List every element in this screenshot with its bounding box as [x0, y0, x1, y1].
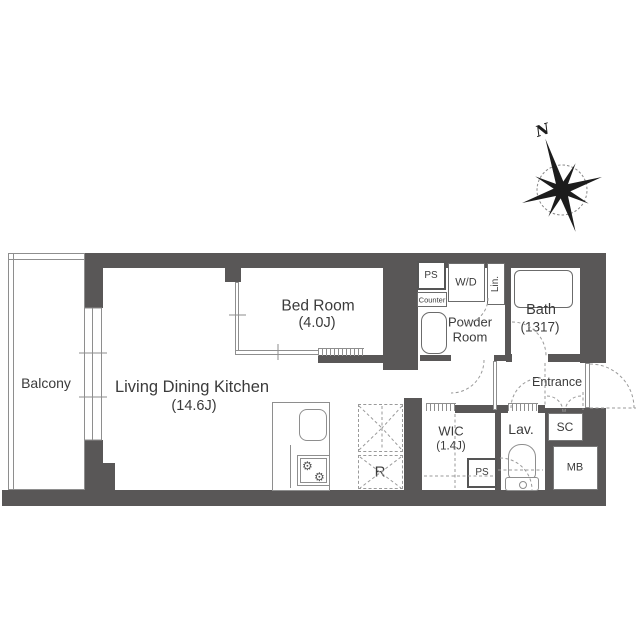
kitchen-divider-line	[290, 445, 291, 488]
balcony-label: Balcony	[21, 376, 71, 390]
balcony-rail-line	[13, 253, 14, 490]
toilet-tank-icon	[505, 477, 539, 491]
washbasin-icon	[421, 312, 447, 354]
bath-size-label: (1317)	[520, 320, 559, 334]
entrance-door-arc	[590, 364, 634, 408]
bedroom-partition-south	[235, 350, 319, 355]
wall-tick	[79, 308, 278, 440]
stove-burner-icon: ⚙	[302, 460, 313, 472]
wall-bedroom-south	[318, 355, 418, 363]
wall-right-upper	[580, 253, 606, 363]
bedroom-partition-west	[235, 282, 239, 352]
shoe-closet-label: SC	[557, 421, 574, 433]
wall-wic-north	[455, 405, 495, 413]
bedroom-sliding-door	[318, 348, 364, 356]
bedroom-label: Bed Room	[281, 298, 354, 314]
wall-bath-south-right	[548, 354, 580, 362]
floor-plan: ⚙ ⚙ Balcony Living Dining Kitchen (14.6J…	[0, 0, 640, 640]
wall-bedroom-stub	[225, 268, 241, 282]
balcony-top-line	[8, 259, 85, 260]
compass-north-label: N	[532, 119, 553, 141]
compass-icon: N	[499, 108, 616, 245]
washer-dryer-label: W/D	[455, 278, 476, 289]
pipe-space-upper-label: PS	[424, 271, 437, 281]
wall-ldk-step	[102, 463, 115, 491]
linen-label: Lin.	[491, 276, 501, 292]
bath-label: Bath	[526, 303, 556, 318]
wall-powder-south-left	[420, 355, 451, 361]
wall-bottom	[2, 490, 606, 506]
ldk-size-label: (14.6J)	[171, 399, 216, 414]
wall-balcony-upper	[84, 268, 103, 308]
powder-room-label-1: Powder	[448, 316, 492, 329]
storage-space-dashed	[358, 404, 403, 452]
compass-diagonal-arms	[522, 150, 603, 231]
entrance-label: Entrance	[532, 376, 582, 389]
kitchen-sink-icon	[299, 409, 327, 441]
corridor-partition	[493, 361, 497, 410]
refrigerator-label: R	[375, 465, 386, 480]
wic-sliding-door	[426, 403, 456, 411]
ldk-window	[84, 308, 102, 440]
wic-size-label: (1.4J)	[436, 441, 465, 453]
wall-balcony-lower	[84, 440, 103, 491]
lav-sliding-door	[508, 403, 538, 411]
ldk-window-center-line	[92, 308, 93, 440]
pipe-space-lower-label: PS	[475, 468, 488, 478]
wall-powder-bath	[505, 263, 511, 355]
wall-wic-west	[404, 398, 422, 492]
toilet-flush-icon	[519, 481, 527, 489]
wic-label: WIC	[438, 425, 463, 438]
powder-room-label-2: Room	[453, 331, 488, 344]
wall-top	[84, 253, 606, 268]
entrance-door-leaf	[585, 363, 590, 408]
counter-label: Counter	[419, 296, 446, 304]
balcony-outline	[8, 253, 85, 490]
ldk-label: Living Dining Kitchen	[115, 379, 269, 396]
powder-door-arc	[451, 360, 484, 393]
compass-north-arm	[542, 137, 566, 191]
wall-bath-south-left	[506, 354, 512, 362]
stove-burner-icon: ⚙	[314, 471, 325, 483]
toilet-bowl-icon	[508, 444, 536, 479]
meter-box-label: MB	[567, 463, 584, 474]
compass-circle	[530, 158, 593, 221]
wall-lav-north-right	[538, 405, 545, 413]
bedroom-size-label: (4.0J)	[298, 316, 335, 331]
lavatory-label: Lav.	[508, 422, 533, 436]
